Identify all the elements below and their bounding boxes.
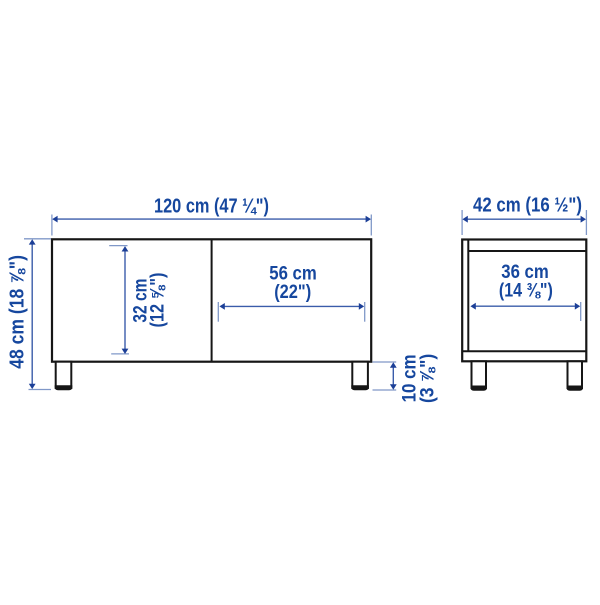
svg-text:(12 ⅝"): (12 ⅝") — [147, 273, 168, 328]
svg-text:42 cm (16 ½"): 42 cm (16 ½") — [473, 194, 582, 217]
svg-text:(22"): (22") — [274, 282, 311, 303]
svg-text:(3 ⅞"): (3 ⅞") — [417, 354, 438, 403]
svg-text:120 cm (47 ¼"): 120 cm (47 ¼") — [154, 195, 269, 218]
svg-text:48 cm (18 ⅞"): 48 cm (18 ⅞") — [7, 255, 29, 369]
svg-text:(14 ⅜"): (14 ⅜") — [499, 280, 553, 301]
